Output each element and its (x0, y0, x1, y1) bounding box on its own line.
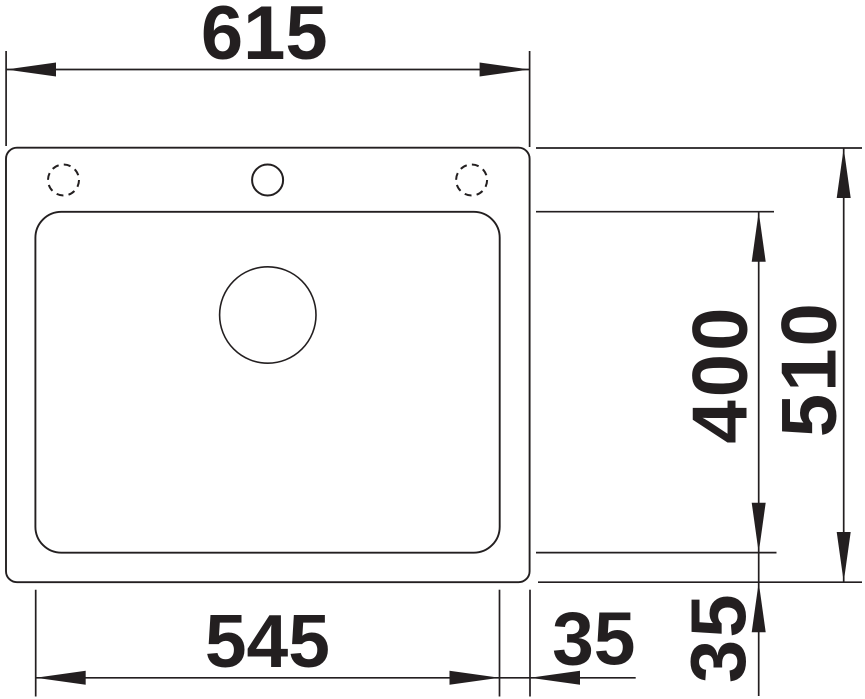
svg-text:400: 400 (676, 305, 764, 444)
svg-text:35: 35 (674, 592, 762, 683)
svg-text:510: 510 (764, 301, 852, 437)
svg-text:545: 545 (205, 599, 330, 683)
svg-text:615: 615 (201, 0, 328, 76)
svg-text:35: 35 (552, 597, 635, 681)
